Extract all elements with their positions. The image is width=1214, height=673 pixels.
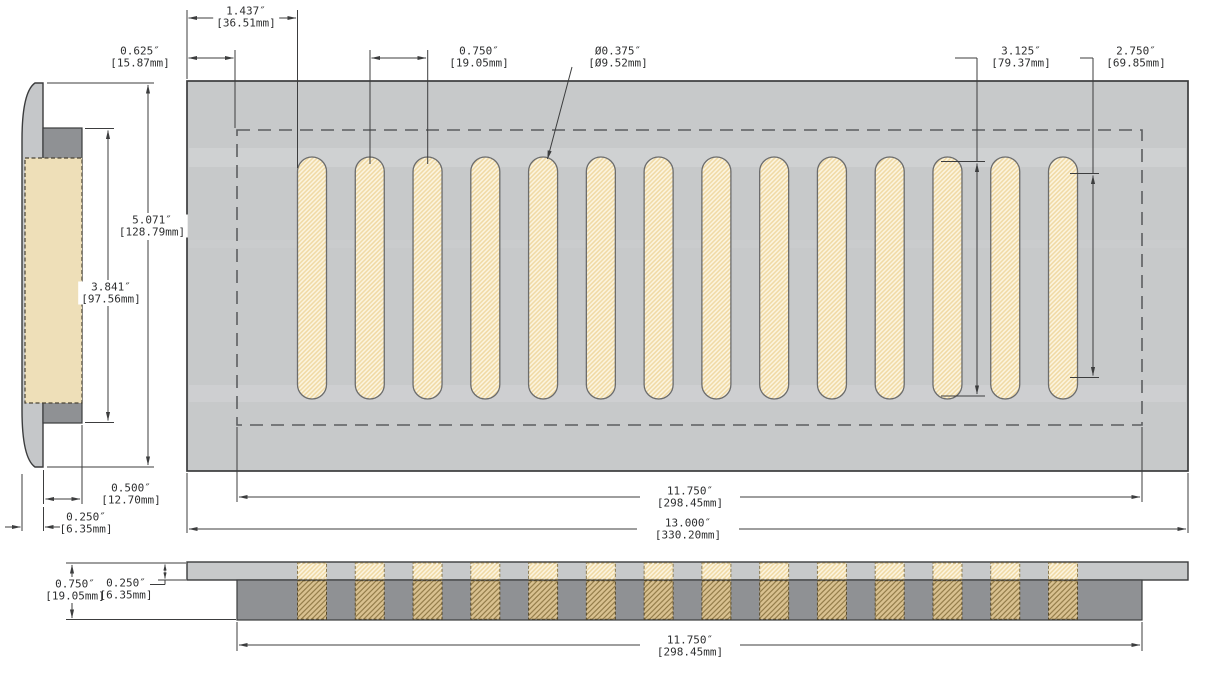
vent-slot	[298, 157, 327, 399]
dim-mm: [19.05mm]	[45, 590, 105, 602]
slot-section	[298, 581, 327, 619]
slot-section	[586, 563, 615, 580]
dim-inches: Ø0.375″	[588, 46, 648, 58]
side-view	[22, 83, 82, 467]
slot-section	[991, 563, 1020, 580]
front-faceplate-strip	[187, 562, 1188, 580]
dim-label-front-total-height: 0.750″ [19.05mm]	[42, 579, 108, 602]
dim-mm: [298.45mm]	[657, 497, 723, 509]
dim-label-plate-height: 5.071″ [128.79mm]	[116, 215, 188, 238]
vent-slot	[644, 157, 673, 399]
slot-section	[413, 563, 442, 580]
vent-slot	[817, 157, 846, 399]
dim-mm: [6.35mm]	[100, 589, 153, 601]
dim-mm: [Ø9.52mm]	[588, 57, 648, 69]
vent-slot	[413, 157, 442, 399]
dim-label-plate-width: 13.000″ [330.20mm]	[652, 518, 724, 541]
dim-inches: 3.125″	[991, 46, 1051, 58]
dim-label-front-plate-thickness: 0.250″ [6.35mm]	[100, 578, 153, 601]
dim-mm: [69.85mm]	[1106, 57, 1166, 69]
dim-mm: [36.51mm]	[216, 17, 276, 29]
vent-slot	[991, 157, 1020, 399]
dim-inches: 13.000″	[655, 518, 721, 530]
brushed-streak	[189, 148, 1186, 167]
dim-mm: [79.37mm]	[991, 57, 1051, 69]
dim-inches: 0.750″	[45, 579, 105, 591]
dim-inches: 1.437″	[216, 6, 276, 18]
slot-section	[817, 563, 846, 580]
dim-label-border-offset: 0.625″ [15.87mm]	[110, 46, 170, 69]
dim-inches: 3.841″	[81, 282, 141, 294]
drawing-canvas	[0, 0, 1214, 673]
slot-section	[471, 581, 500, 619]
dim-inches: 0.250″	[100, 578, 153, 590]
slot-section	[875, 581, 904, 619]
dim-inches: 0.500″	[101, 483, 161, 495]
vent-slot	[471, 157, 500, 399]
slot-section	[529, 581, 558, 619]
slot-section	[933, 581, 962, 619]
slot-section	[760, 581, 789, 619]
vent-register-technical-drawing: 1.437″ [36.51mm] 0.625″ [15.87mm] 0.750″…	[0, 0, 1214, 673]
slot-section	[702, 563, 731, 580]
dim-inches: 2.750″	[1106, 46, 1166, 58]
dim-mm: [19.05mm]	[449, 57, 509, 69]
slot-section	[644, 563, 673, 580]
dim-label-box-height: 3.841″ [97.56mm]	[78, 282, 144, 305]
dim-label-slot-offset: 1.437″ [36.51mm]	[213, 6, 279, 29]
vent-slot	[586, 157, 615, 399]
faceplate	[187, 81, 1188, 471]
dim-label-opening-width: 11.750″ [298.45mm]	[654, 486, 726, 509]
dim-label-slot-pitch: 0.750″ [19.05mm]	[449, 46, 509, 69]
dim-label-slot-length: 3.125″ [79.37mm]	[991, 46, 1051, 69]
vent-slot	[875, 157, 904, 399]
slot-section	[586, 581, 615, 619]
dim-mm: [15.87mm]	[110, 57, 170, 69]
dim-label-slot-width: Ø0.375″ [Ø9.52mm]	[588, 46, 648, 69]
slot-section	[817, 581, 846, 619]
vent-slot	[702, 157, 731, 399]
slot-section	[933, 563, 962, 580]
dim-label-slot-straight: 2.750″ [69.85mm]	[1106, 46, 1166, 69]
dim-inches: 0.250″	[60, 512, 113, 524]
slot-section	[875, 563, 904, 580]
dim-inches: 11.750″	[657, 486, 723, 498]
dim-label-front-box-width: 11.750″ [298.45mm]	[654, 635, 726, 658]
dim-inches: 0.750″	[449, 46, 509, 58]
vent-slot	[355, 157, 384, 399]
slot-section	[355, 581, 384, 619]
side-view-opening-plain	[26, 159, 43, 402]
slot-section	[644, 581, 673, 619]
dim-inches: 0.625″	[110, 46, 170, 58]
brushed-streak	[189, 385, 1186, 402]
slot-section	[298, 563, 327, 580]
vent-slot	[760, 157, 789, 399]
slot-section	[1049, 563, 1078, 580]
slot-section	[529, 563, 558, 580]
vent-slot	[1049, 157, 1078, 399]
front-view	[187, 562, 1188, 620]
dim-mm: [97.56mm]	[81, 293, 141, 305]
dim-label-flange-depth: 0.250″ [6.35mm]	[60, 512, 113, 535]
dim-mm: [330.20mm]	[655, 529, 721, 541]
dim-inches: 5.071″	[119, 215, 185, 227]
slot-section	[1049, 581, 1078, 619]
dim-label-box-depth: 0.500″ [12.70mm]	[101, 483, 161, 506]
vent-slot	[933, 157, 962, 399]
top-view	[187, 81, 1188, 471]
dim-mm: [6.35mm]	[60, 523, 113, 535]
slot-section	[991, 581, 1020, 619]
slot-section	[471, 563, 500, 580]
slot-section	[355, 563, 384, 580]
slot-section	[413, 581, 442, 619]
dim-mm: [128.79mm]	[119, 226, 185, 238]
dim-mm: [12.70mm]	[101, 494, 161, 506]
brushed-streak	[189, 240, 1186, 248]
dim-mm: [298.45mm]	[657, 646, 723, 658]
slot-section	[760, 563, 789, 580]
dim-inches: 11.750″	[657, 635, 723, 647]
slot-section	[702, 581, 731, 619]
vent-slot	[529, 157, 558, 399]
